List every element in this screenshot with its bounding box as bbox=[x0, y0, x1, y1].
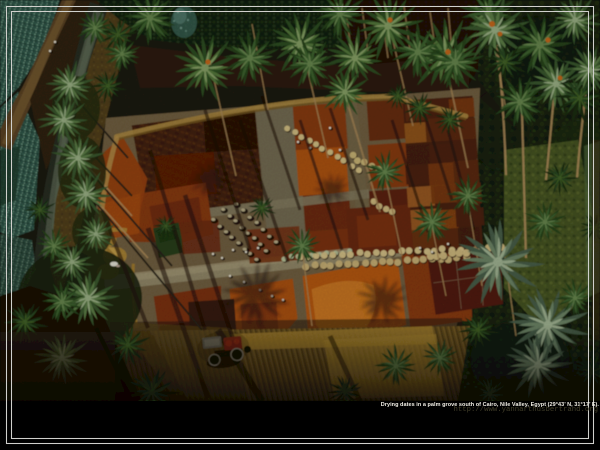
svg-text:http://www.yannarthusbertrand.: http://www.yannarthusbertrand.org bbox=[453, 406, 598, 414]
